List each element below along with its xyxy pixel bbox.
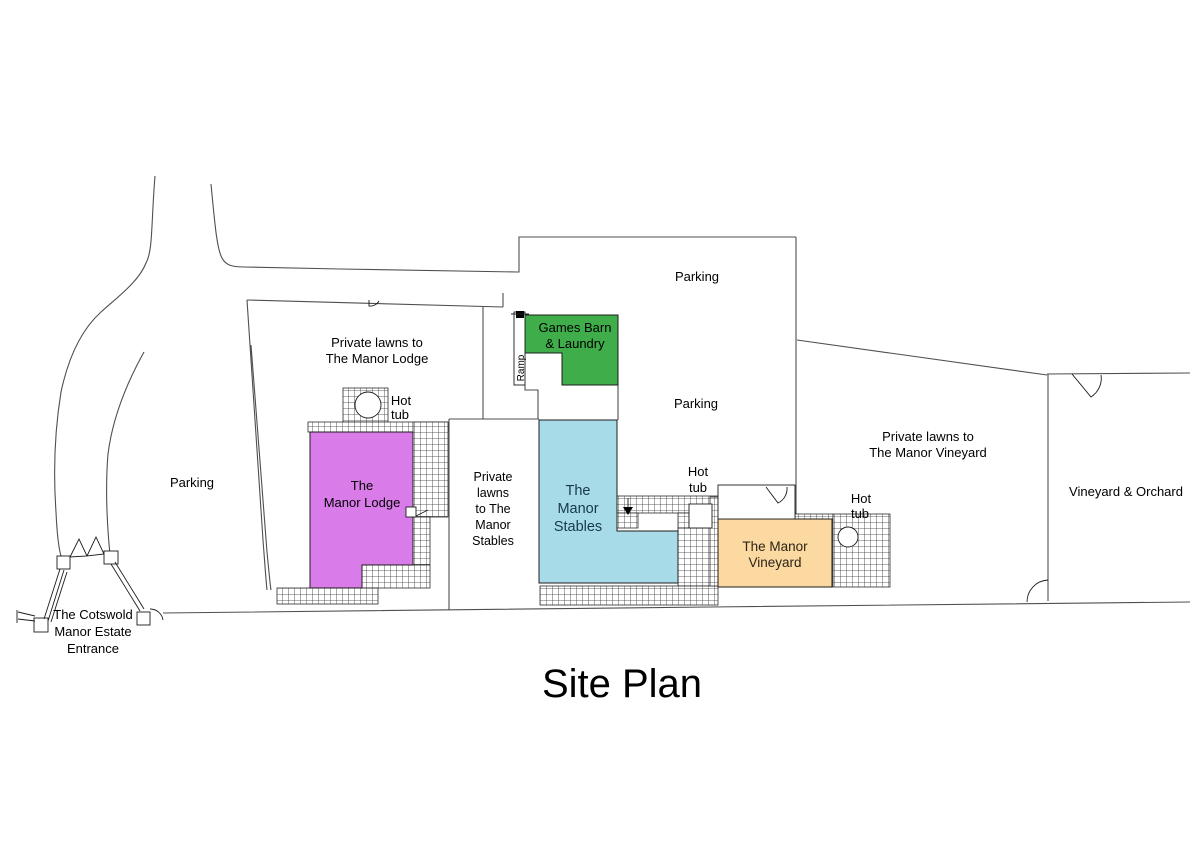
gate-finials [70,537,104,557]
gate-post [34,618,48,632]
stables-lawns-label-2: lawns [477,486,509,500]
lodge-lawns-label-2: The Manor Lodge [326,351,429,366]
stables-label-2: Manor [557,501,598,517]
site-plan-page: Parking Parking Parking Private lawns to… [0,0,1200,848]
lodge-hot-tub-label-2: tub [391,407,409,422]
vineyard-hot-tub-patio [833,514,890,587]
orchard-label: Vineyard & Orchard [1069,484,1183,499]
site-plan-drawing: Parking Parking Parking Private lawns to… [0,0,1200,848]
driveway-inner-curve [107,352,144,555]
stables-bottom-strip [540,586,718,605]
entrance-label-3: Entrance [67,641,119,656]
driveway-and-parking-top-edge [211,184,796,272]
lodge-patio-south [362,565,430,588]
vineyard-hot-tub-label-2: tub [851,506,869,521]
lodge-label-2: Manor Lodge [324,495,401,510]
vineyard-lawns-label-2: The Manor Vineyard [869,445,987,460]
lodge-patio-east-narrow [413,517,430,565]
ramp-label: Ramp [516,354,527,381]
stables-hot-tub-square [689,504,712,528]
stables-hot-tub-label-2: tub [689,480,707,495]
lodge-hot-tub-circle [355,392,381,418]
ramp-top-marker [516,311,524,318]
parking-central-label: Parking [674,396,718,411]
lodge-door-notch [406,507,416,517]
lane-stub [17,610,35,623]
driveway-outer-curve [55,176,155,556]
entrance-label-1: The Cotswold [53,607,132,622]
orchard-south-gate-arc [1027,580,1048,602]
lodge-patio-bottom-strip [277,588,378,604]
page-title: Site Plan [542,662,702,706]
stables-courtyard-sliver [678,513,689,528]
stables-lawns-label-3: to The [475,502,510,516]
parking-west-label: Parking [170,475,214,490]
stables-lawns-label-4: Manor [475,518,510,532]
stables-label-1: The [566,483,591,499]
gate-post [104,551,118,564]
gate-wall-right [111,562,144,611]
lodge-label-1: The [351,478,373,493]
games-barn-label-1: Games Barn [539,320,612,335]
stables-label-3: Stables [554,519,602,535]
vineyard-label-1: The Manor [742,539,808,554]
stables-lawns-label-5: Stables [472,534,514,548]
stables-hot-tub-label-1: Hot [688,464,709,479]
vineyard-forecourt [718,485,795,519]
barn-yard-lines [525,385,618,420]
lodge-lawns-label-1: Private lawns to [331,335,423,350]
entrance-gate-arc [150,609,163,620]
lodge-hot-tub-label-1: Hot [391,393,412,408]
stables-lawns-label-1: Private [474,470,513,484]
entrance-label-2: Manor Estate [54,624,131,639]
orchard-north-gate-arc [1072,374,1101,397]
vineyard-label-2: Vineyard [748,555,801,570]
vineyard-lawns-label-1: Private lawns to [882,429,974,444]
games-barn-label-2: & Laundry [545,336,605,351]
parking-north-label: Parking [675,269,719,284]
lodge-patio-east [413,422,448,517]
gate-post [57,556,70,569]
manor-lodge-building [310,432,413,588]
lodge-lawn-west-wall [247,300,271,590]
vineyard-hot-tub-circle [838,527,858,547]
stables-courtyard-step [617,513,638,528]
gate-post [137,612,150,625]
vineyard-hot-tub-label-1: Hot [851,491,872,506]
